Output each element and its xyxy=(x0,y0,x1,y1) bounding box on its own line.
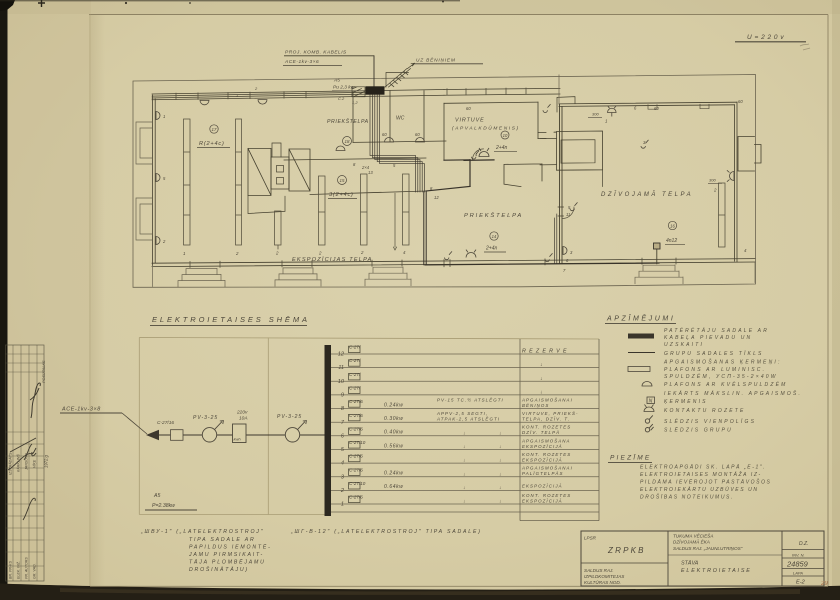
svg-text:APZĪMĒJUMI: APZĪMĒJUMI xyxy=(606,315,675,323)
svg-text:PV-3-25: PV-3-25 xyxy=(277,414,302,420)
svg-text:2: 2 xyxy=(235,251,240,256)
svg-text:60: 60 xyxy=(466,106,471,111)
svg-text:PATĒRĒTĀJU SADALE AR: PATĒRĒTĀJU SADALE AR xyxy=(664,327,769,334)
svg-text:↓: ↓ xyxy=(499,458,501,463)
svg-text:APGAISMOŠANAS ĶERMEŅI:: APGAISMOŠANAS ĶERMEŅI: xyxy=(663,359,782,366)
svg-text:10: 10 xyxy=(503,133,508,138)
svg-text:KONTAKTU ROZETE: KONTAKTU ROZETE xyxy=(664,408,746,414)
svg-text:2: 2 xyxy=(360,250,365,255)
svg-text:SALDUS RAJ.: SALDUS RAJ. xyxy=(584,568,614,573)
svg-text:12: 12 xyxy=(434,195,439,200)
svg-text:P=2.38kw: P=2.38kw xyxy=(152,503,176,509)
svg-text:60: 60 xyxy=(415,132,420,137)
svg-text:EKSPOZĪCIJĀ: EKSPOZĪCIJĀ xyxy=(522,458,563,463)
svg-text:0.30kw: 0.30kw xyxy=(384,416,403,422)
svg-text:PV-3-25: PV-3-25 xyxy=(193,415,218,421)
svg-text:ELEKTROIETAISES SHĒMA: ELEKTROIETAISES SHĒMA xyxy=(152,315,310,324)
svg-text:2: 2 xyxy=(275,251,280,256)
svg-text:3(2+4c): 3(2+4c) xyxy=(329,192,354,198)
svg-text:D.Z.: D.Z. xyxy=(799,541,808,547)
svg-text:E-2: E-2 xyxy=(796,580,806,586)
svg-text:4: 4 xyxy=(341,461,344,467)
svg-text:EKSPOZĪCIJĀ: EKSPOZĪCIJĀ xyxy=(522,444,563,449)
svg-text:13: 13 xyxy=(368,170,373,175)
svg-text:C-27/6: C-27/6 xyxy=(349,454,363,459)
svg-text:IZPILDKOMITEJAS: IZPILDKOMITEJAS xyxy=(584,574,625,579)
svg-text:DZĪVOJAMĀ TELPA: DZĪVOJAMĀ TELPA xyxy=(601,191,693,198)
svg-text:↓: ↓ xyxy=(540,389,543,395)
svg-text:SALDUS RAJ. „JAUNLUTRIŅOS": SALDUS RAJ. „JAUNLUTRIŅOS" xyxy=(673,546,743,551)
svg-text:PV-15 TC.½ ATSLĒGTI: PV-15 TC.½ ATSLĒGTI xyxy=(437,398,504,403)
svg-text:U=220v: U=220v xyxy=(747,34,786,41)
svg-text:PIEZĪME: PIEZĪME xyxy=(610,454,651,462)
svg-text:1: 1 xyxy=(605,119,609,124)
svg-text:10A: 10A xyxy=(239,416,248,422)
svg-text:VIRTUVE, PRIEKŠ-: VIRTUVE, PRIEKŠ- xyxy=(522,411,579,416)
svg-text:2+4n: 2+4n xyxy=(485,246,497,252)
svg-text:IEKĀRTS MĀKSLIN. APGAISMOŠ.: IEKĀRTS MĀKSLIN. APGAISMOŠ. xyxy=(664,390,802,397)
svg-text:PILDĀMA IEVĒROJOT PASTĀVOŠOS: PILDĀMA IEVĒROJOT PASTĀVOŠOS xyxy=(640,479,772,486)
svg-text:EKSPOZĪCIJĀ: EKSPOZĪCIJĀ xyxy=(522,483,563,488)
svg-text:2: 2 xyxy=(318,251,323,256)
svg-text:↓: ↓ xyxy=(499,499,501,504)
svg-text:0.56kw: 0.56kw xyxy=(384,443,403,449)
svg-text:KONT. ROZETES: KONT. ROZETES xyxy=(522,493,571,498)
svg-text:1: 1 xyxy=(236,93,238,98)
svg-text:„ШГ-В-12" („LATELEKTROSTROJ" T: „ШГ-В-12" („LATELEKTROSTROJ" TIPA SADALE… xyxy=(290,529,482,535)
svg-text:60: 60 xyxy=(654,106,659,111)
svg-text:10: 10 xyxy=(338,379,345,385)
svg-text:APPV-2,5 SEGTI,: APPV-2,5 SEGTI, xyxy=(436,411,488,416)
svg-text:0.24kw: 0.24kw xyxy=(384,402,403,408)
svg-text:↓: ↓ xyxy=(499,430,501,435)
svg-text:60: 60 xyxy=(382,132,387,137)
svg-text:UZSKAITI: UZSKAITI xyxy=(664,342,704,348)
svg-text:PR. AUTORS: PR. AUTORS xyxy=(25,557,29,579)
svg-text:↓: ↓ xyxy=(463,458,465,463)
svg-text:ACE-1kv-3×8: ACE-1kv-3×8 xyxy=(61,407,101,413)
svg-text:300: 300 xyxy=(709,178,716,183)
svg-text:APGAISMOŠANA: APGAISMOŠANA xyxy=(521,438,571,443)
svg-text:VĪĶE: VĪĶE xyxy=(33,459,37,468)
svg-text:KONT. ROZETES: KONT. ROZETES xyxy=(522,425,571,430)
svg-text:GRUPU SADALES TĪKLS: GRUPU SADALES TĪKLS xyxy=(664,350,764,357)
svg-text:↓: ↓ xyxy=(463,499,465,504)
svg-text:11: 11 xyxy=(338,365,344,371)
svg-text:KULTŪRAS NOD.: KULTŪRAS NOD. xyxy=(584,579,621,585)
svg-text:↓: ↓ xyxy=(540,376,543,382)
svg-text:„ШВУ-1" („LATELEKTROSTROJ": „ШВУ-1" („LATELEKTROSTROJ" xyxy=(140,529,264,535)
svg-text:EKSPOZĪCIJAS TELPA: EKSPOZĪCIJAS TELPA xyxy=(292,256,373,263)
svg-text:↓: ↓ xyxy=(499,485,501,490)
svg-text:SLĒDZIS GRUPU: SLĒDZIS GRUPU xyxy=(664,427,733,434)
svg-text:PRIEKŠTELPA: PRIEKŠTELPA xyxy=(464,212,523,219)
svg-text:PLAFONS AR LUMINISC.: PLAFONS AR LUMINISC. xyxy=(664,367,766,373)
svg-text:ĶERMENIS: ĶERMENIS xyxy=(664,399,708,405)
svg-text:9: 9 xyxy=(341,393,344,399)
svg-text:KABEĻA PIEVADU UN: KABEĻA PIEVADU UN xyxy=(664,335,752,341)
svg-text:ELEKTROIETAISE: ELEKTROIETAISE xyxy=(681,568,752,574)
svg-text:ELEK. INŽ.: ELEK. INŽ. xyxy=(16,561,21,579)
svg-text:C-27/6: C-27/6 xyxy=(349,399,363,404)
svg-text:DZĪV. TELPĀ: DZĪV. TELPĀ xyxy=(522,430,560,435)
svg-text:C-27/: C-27/ xyxy=(349,358,361,363)
svg-text:A5: A5 xyxy=(333,78,340,84)
svg-text:18: 18 xyxy=(345,139,350,144)
svg-text:12: 12 xyxy=(338,352,345,358)
svg-text:DROŠĪBAS NOTEIKUMUS.: DROŠĪBAS NOTEIKUMUS. xyxy=(640,494,734,501)
svg-text:VIRTUVE: VIRTUVE xyxy=(455,118,485,124)
svg-text:C-27/6: C-27/6 xyxy=(349,413,363,418)
svg-text:ELEKTROIEKĀRTU UZBŪVES UN: ELEKTROIEKĀRTU UZBŪVES UN xyxy=(640,486,759,493)
svg-text:PALĪGTELPĀS: PALĪGTELPĀS xyxy=(522,471,564,476)
svg-text:C-27/6: C-27/6 xyxy=(349,467,363,472)
svg-text:C-27/: C-27/ xyxy=(349,372,361,377)
svg-text:TIPA SADALE AR: TIPA SADALE AR xyxy=(189,537,256,543)
svg-text:2: 2 xyxy=(713,188,718,193)
svg-text:Pu 2,3 kw: Pu 2,3 kw xyxy=(333,85,355,91)
svg-text:16: 16 xyxy=(670,224,675,229)
svg-text:WC: WC xyxy=(396,116,405,122)
svg-text:C-27/: C-27/ xyxy=(349,386,361,391)
svg-text:EKSPOZĪCIJĀ: EKSPOZĪCIJĀ xyxy=(522,498,563,503)
svg-text:0.24kw: 0.24kw xyxy=(384,471,403,477)
svg-text:PRIEKŠTELPA: PRIEKŠTELPA xyxy=(327,118,369,125)
svg-text:↓: ↓ xyxy=(463,444,465,449)
svg-text:APGAISMOŠANAI: APGAISMOŠANAI xyxy=(521,466,573,471)
svg-text:POSŪTALKS: POSŪTALKS xyxy=(42,360,46,383)
svg-text:A5: A5 xyxy=(153,493,160,499)
svg-text:JAMU PIRMSIKAIT-: JAMU PIRMSIKAIT- xyxy=(188,552,264,558)
svg-text:↓: ↓ xyxy=(499,471,501,476)
svg-text:↓: ↓ xyxy=(463,485,465,490)
svg-text:1: 1 xyxy=(341,502,344,508)
svg-text:APGAISMOŠANAI: APGAISMOŠANAI xyxy=(521,397,573,402)
svg-text:4n12: 4n12 xyxy=(666,238,677,244)
svg-text:R(2+4c): R(2+4c) xyxy=(199,141,225,147)
svg-text:kwh: kwh xyxy=(234,437,242,442)
svg-text:4: 4 xyxy=(403,250,407,255)
svg-text:0.64kw: 0.64kw xyxy=(384,484,403,490)
svg-text:KONT. ROZETES: KONT. ROZETES xyxy=(522,452,571,457)
svg-text:INV. N.: INV. N. xyxy=(792,553,805,558)
svg-text:ELEKTROAPGĀDI SK. LAPĀ „E-1".: ELEKTROAPGĀDI SK. LAPĀ „E-1". xyxy=(640,464,766,471)
svg-text:C-27/6: C-27/6 xyxy=(349,495,363,500)
svg-text:SLĒDZIS VIENPOLĪGS: SLĒDZIS VIENPOLĪGS xyxy=(664,418,756,425)
svg-text:UZ BĒNIŅIEM: UZ BĒNIŅIEM xyxy=(416,57,456,64)
svg-text:1: 1 xyxy=(183,251,187,256)
svg-text:TELPA, DZĪV. T.: TELPA, DZĪV. T. xyxy=(522,417,570,422)
svg-text:IZSTRĀDĀTS: IZSTRĀDĀTS xyxy=(9,452,13,475)
svg-text:4: 4 xyxy=(744,248,748,253)
svg-text:60: 60 xyxy=(738,99,743,104)
svg-text:TĀJA PLOMBĒJAMU: TĀJA PLOMBĒJAMU xyxy=(189,559,266,566)
svg-text:14: 14 xyxy=(492,234,497,239)
svg-text:DROŠINĀTĀJU): DROŠINĀTĀJU) xyxy=(189,566,249,573)
svg-text:15: 15 xyxy=(340,178,345,183)
svg-text:REZERVE: REZERVE xyxy=(522,349,570,355)
svg-text:LPSR: LPSR xyxy=(584,536,597,541)
svg-text:C-27/: C-27/ xyxy=(349,345,361,350)
svg-text:(APVALKDŪMENIS): (APVALKDŪMENIS) xyxy=(452,125,520,132)
svg-text:C-27/10: C-27/10 xyxy=(349,481,366,486)
svg-text:GR. VAD.: GR. VAD. xyxy=(33,563,37,579)
svg-text:↓: ↓ xyxy=(540,362,543,368)
svg-text:220v: 220v xyxy=(236,410,248,416)
svg-text:1972.g: 1972.g xyxy=(44,455,49,468)
svg-text:↓: ↓ xyxy=(499,444,501,449)
svg-text:BR. PR-KS: BR. PR-KS xyxy=(9,560,13,579)
svg-text:STĀVA: STĀVA xyxy=(681,560,699,567)
svg-text:↓: ↓ xyxy=(463,430,465,435)
svg-text:↓: ↓ xyxy=(463,471,465,476)
svg-text:LAPA: LAPA xyxy=(793,571,803,576)
svg-text:PROJ. KOMB. KABELIS: PROJ. KOMB. KABELIS xyxy=(285,50,347,56)
svg-text:TUKUMA VĒCIEŠA: TUKUMA VĒCIEŠA xyxy=(673,533,713,539)
svg-text:29: 29 xyxy=(820,581,828,587)
svg-text:C-27/6: C-27/6 xyxy=(349,426,363,431)
svg-text:300: 300 xyxy=(592,112,599,117)
svg-text:1: 1 xyxy=(163,114,165,119)
svg-text:DZĪVOJAMĀ ĒKA: DZĪVOJAMĀ ĒKA xyxy=(673,539,710,545)
svg-text:SPULDZĒM, УСП-35-2×40W: SPULDZĒM, УСП-35-2×40W xyxy=(664,373,778,380)
svg-text:ACE-1kv-3×6: ACE-1kv-3×6 xyxy=(284,59,319,65)
svg-text:1,2: 1,2 xyxy=(352,100,358,105)
svg-text:PAPILDUS IEMONTĒ-: PAPILDUS IEMONTĒ- xyxy=(189,544,272,551)
svg-text:2+4n: 2+4n xyxy=(495,145,507,151)
svg-text:N: N xyxy=(649,399,653,405)
svg-text:C-27/16: C-27/16 xyxy=(157,420,174,426)
svg-text:0.40kw: 0.40kw xyxy=(384,430,403,436)
svg-text:11: 11 xyxy=(566,212,570,217)
svg-text:17: 17 xyxy=(212,127,217,132)
svg-text:ZRPKB: ZRPKB xyxy=(607,546,646,555)
svg-text:C.2: C.2 xyxy=(338,96,345,101)
svg-text:ELEKTROIETAISES MONTĀŽA IZ-: ELEKTROIETAISES MONTĀŽA IZ- xyxy=(640,470,762,478)
svg-text:BĒNIŅOS: BĒNIŅOS xyxy=(522,403,549,408)
svg-text:C-27/10: C-27/10 xyxy=(349,440,366,445)
svg-text:PLAFONS AR KVĒLSPULDZĒM: PLAFONS AR KVĒLSPULDZĒM xyxy=(664,381,788,388)
svg-text:24859: 24859 xyxy=(786,560,809,569)
svg-text:ATPAK-2,5 ATSLĒGTI: ATPAK-2,5 ATSLĒGTI xyxy=(436,416,500,421)
